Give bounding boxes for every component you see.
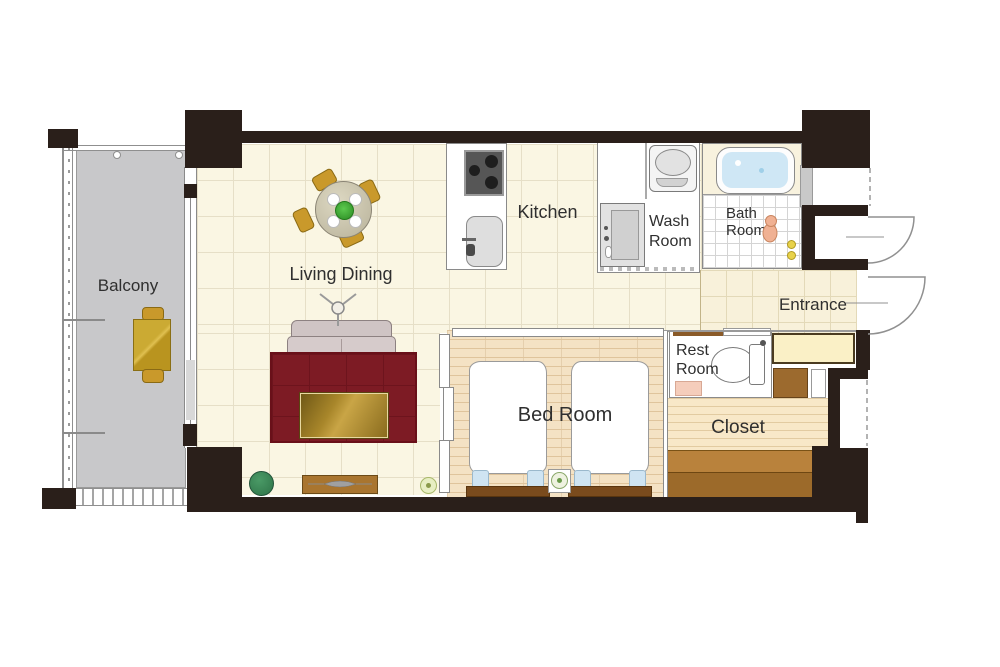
burner-icon	[469, 165, 480, 176]
balcony-corner-mark-left	[113, 151, 121, 159]
wall-top-right-block	[802, 110, 870, 168]
toilet-button-icon	[760, 340, 766, 346]
dining-table-icon	[315, 181, 372, 238]
entrance-label: Entrance	[762, 295, 864, 315]
washing-machine-icon	[649, 145, 697, 192]
washer-niche-wall	[645, 141, 647, 199]
washer-lid-icon	[655, 149, 691, 176]
window-cap-top	[184, 184, 197, 198]
tv-board-icon	[302, 475, 378, 494]
wall-top-left-block	[185, 110, 242, 168]
nightstand-flower-center-icon	[557, 478, 562, 483]
wall-bottom-right-block	[812, 446, 868, 507]
bathtub-icon	[716, 147, 795, 194]
vanity-icon	[600, 203, 645, 267]
balcony-railing-bottom	[74, 488, 187, 506]
toilet-mat-icon	[675, 381, 702, 396]
hall-floor-edge	[663, 330, 857, 332]
window-cap-bottom	[183, 424, 197, 446]
flower-center-icon	[426, 483, 431, 488]
wall-balcony-top-block	[48, 129, 78, 148]
bed-headboard-icon	[466, 486, 550, 497]
sliding-door-panel	[439, 440, 450, 493]
washroom-threshold	[600, 267, 697, 271]
bedroom-top-partition	[452, 328, 664, 337]
balcony-window-frost	[186, 360, 195, 420]
shampoo-bottle-icon	[787, 240, 796, 249]
bedroom-label: Bed Room	[505, 404, 625, 427]
kitchen-label: Kitchen	[505, 202, 590, 223]
closet-step-upper	[668, 450, 812, 472]
living-dining-label: Living Dining	[261, 264, 421, 285]
vanity-basin-icon	[611, 210, 639, 260]
wall-bottom-strip	[187, 497, 868, 512]
bathroom-label-line1: Bath	[726, 205, 766, 222]
restroom-label-line1: Rest	[676, 341, 719, 360]
hall-cabinet-icon	[773, 368, 808, 398]
washer-panel-icon	[656, 178, 688, 187]
shoe-cabinet-icon	[772, 333, 855, 364]
sliding-door-panel	[439, 334, 450, 388]
floor-plan: Balcony Living Dining Kitchen Wash Room …	[0, 0, 1000, 667]
entrance-step-line	[700, 270, 701, 333]
hall-mirror-icon	[811, 369, 826, 398]
restroom-label-line2: Room	[676, 360, 719, 379]
balcony-chair-bottom-icon	[142, 369, 164, 383]
balcony-label: Balcony	[88, 276, 168, 296]
toilet-tank-icon	[749, 344, 765, 385]
sliding-door-panel	[443, 387, 454, 441]
bath-sparkle-icon	[735, 160, 741, 166]
balcony-divider-tick-upper	[63, 319, 105, 321]
bath-sparkle-icon	[759, 168, 764, 173]
bedroom-right-wall	[663, 331, 668, 497]
balcony-railing-top	[62, 145, 186, 151]
pipe-space-niche	[840, 379, 868, 448]
bed-headboard-icon	[568, 486, 652, 497]
vanity-faucet-dot-icon	[604, 236, 609, 241]
burner-icon	[485, 176, 498, 189]
bath-outer-wall	[800, 165, 813, 207]
vanity-soap-icon	[605, 246, 612, 258]
wall-entrance-right	[856, 330, 870, 370]
plant-icon	[249, 471, 274, 496]
washroom-label-line1: Wash	[649, 212, 692, 232]
restroom-label: Rest Room	[676, 341, 719, 379]
bathroom-label: Bath Room	[726, 205, 766, 239]
closet-label: Closet	[696, 417, 780, 439]
bath-water-icon	[722, 152, 788, 188]
burner-icon	[485, 155, 498, 168]
wall-top-strip	[240, 131, 802, 143]
washroom-label-line2: Room	[649, 232, 692, 252]
washroom-label: Wash Room	[649, 212, 692, 252]
bathroom-label-line2: Room	[726, 222, 766, 239]
shampoo-bottle-icon	[787, 251, 796, 260]
balcony-corner-mark-right	[175, 151, 183, 159]
stove-icon	[464, 150, 504, 196]
kitchen-faucet-knob-icon	[466, 244, 475, 256]
utility-recess	[815, 216, 868, 259]
balcony-table-icon	[133, 319, 171, 371]
balcony-divider-tick-lower	[63, 432, 105, 434]
coffee-table-icon	[300, 393, 388, 438]
kitchen-faucet-icon	[462, 238, 476, 241]
wall-balcony-bottom-block	[42, 488, 76, 509]
wall-living-bottom-left-block	[187, 447, 242, 498]
vanity-faucet-dot-icon	[604, 226, 608, 230]
closet-step-lower	[668, 472, 812, 497]
centerpiece-plant-icon	[335, 201, 354, 220]
kitchen-sink-icon	[466, 216, 503, 267]
